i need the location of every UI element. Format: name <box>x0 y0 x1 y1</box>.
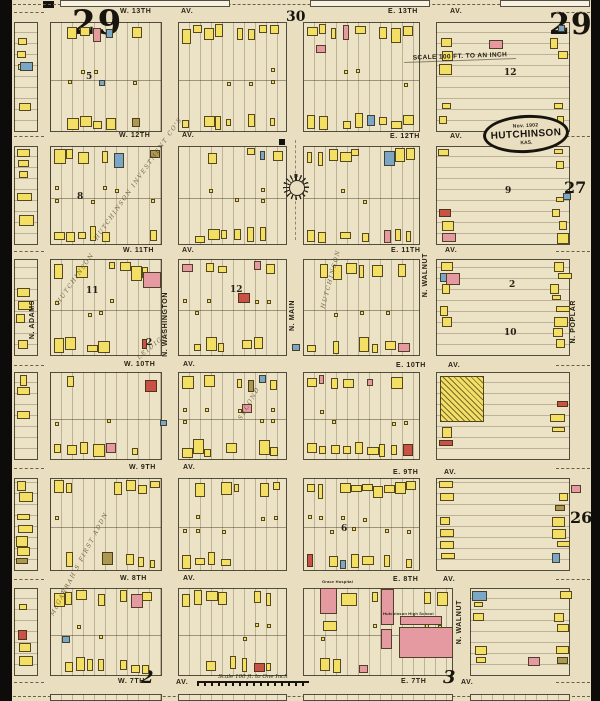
survey-dash <box>556 12 590 13</box>
labels-layer: W. 13THAV.E. 13THAV.W. 12THAV.E. 12THAV.… <box>0 0 600 701</box>
street-label: AV. <box>183 464 195 471</box>
plat-name-label: SECOND <box>237 386 262 422</box>
street-label: W. 13TH <box>120 8 151 15</box>
block-number: 5 <box>86 72 92 82</box>
scale-bar-line <box>197 681 309 686</box>
street-label: AV. <box>444 469 456 476</box>
street-label: E. 11TH <box>391 247 421 254</box>
street-label: E. 10TH <box>396 362 426 369</box>
block-number: 12 <box>230 285 243 295</box>
grace-hospital-label: Grace Hospital <box>322 579 353 584</box>
survey-dash <box>556 468 590 469</box>
block-number: 12 <box>504 68 517 78</box>
vertical-street-label: N. MAIN <box>289 300 296 331</box>
vertical-street-label: N. WALNUT <box>422 253 429 297</box>
block-number: 8 <box>77 192 83 202</box>
street-label: AV. <box>183 361 195 368</box>
plat-name-label: McGARRAH'S FIRST ADDN <box>49 511 110 617</box>
block-number: 9 <box>505 186 511 196</box>
survey-dash <box>556 579 590 580</box>
survey-dash <box>14 136 44 137</box>
sanborn-map-sheet: W. 13THAV.E. 13THAV.W. 12THAV.E. 12THAV.… <box>0 0 600 701</box>
scale-note-bottom: Scale 100 ft. to One Inch <box>197 674 309 680</box>
high-school-label: Hutchinson High School <box>383 611 434 616</box>
street-label: W. 10TH <box>124 361 155 368</box>
survey-dash <box>14 579 44 580</box>
street-label: E. 9TH <box>393 469 418 476</box>
street-label: AV. <box>461 679 473 686</box>
street-label: AV. <box>182 247 194 254</box>
street-label: AV. <box>183 575 195 582</box>
street-label: AV. <box>443 576 455 583</box>
block-number: 2 <box>509 280 515 290</box>
compass-center <box>289 180 305 196</box>
street-label: W. 7TH <box>118 678 145 685</box>
street-label: AV. <box>450 8 462 15</box>
street-label: AV. <box>182 132 194 139</box>
street-label: AV. <box>445 247 457 254</box>
street-label: AV. <box>450 133 462 140</box>
plat-name-label: HUTCHINSON <box>55 252 96 306</box>
vertical-street-label: N. ADAMS <box>29 300 36 339</box>
survey-dash <box>556 365 590 366</box>
survey-dash <box>14 365 44 366</box>
street-label: E. 12TH <box>390 133 420 140</box>
survey-dash <box>556 682 590 683</box>
plat-name-label: HUTCHINSON <box>320 249 343 310</box>
street-label: W. 12TH <box>119 132 150 139</box>
survey-dash <box>556 251 590 252</box>
survey-dash <box>14 682 44 683</box>
vertical-street-label: N. POPLAR <box>570 300 577 344</box>
street-label: AV. <box>176 679 188 686</box>
stamp-state: KAS. <box>520 139 532 146</box>
block-number: 2 <box>146 338 152 348</box>
street-label: W. 9TH <box>129 464 156 471</box>
street-label: AV. <box>181 8 193 15</box>
survey-dash <box>14 468 44 469</box>
street-label: AV. <box>448 362 460 369</box>
survey-dash <box>14 12 44 13</box>
block-number: 6 <box>341 524 347 534</box>
street-label: W. 11TH <box>123 247 154 254</box>
survey-dash <box>14 251 44 252</box>
street-label: E. 8TH <box>393 576 418 583</box>
street-label: E. 13TH <box>388 8 418 15</box>
block-number: 11 <box>86 286 99 296</box>
street-label: E. 7TH <box>401 678 426 685</box>
scale-bar: Scale 100 ft. to One Inch <box>197 674 309 686</box>
block-number: 10 <box>504 328 517 338</box>
street-label: W. 8TH <box>120 575 147 582</box>
vertical-street-label: N. WASHINGTON <box>162 292 169 357</box>
vertical-street-label: N. WALNUT <box>456 600 463 644</box>
